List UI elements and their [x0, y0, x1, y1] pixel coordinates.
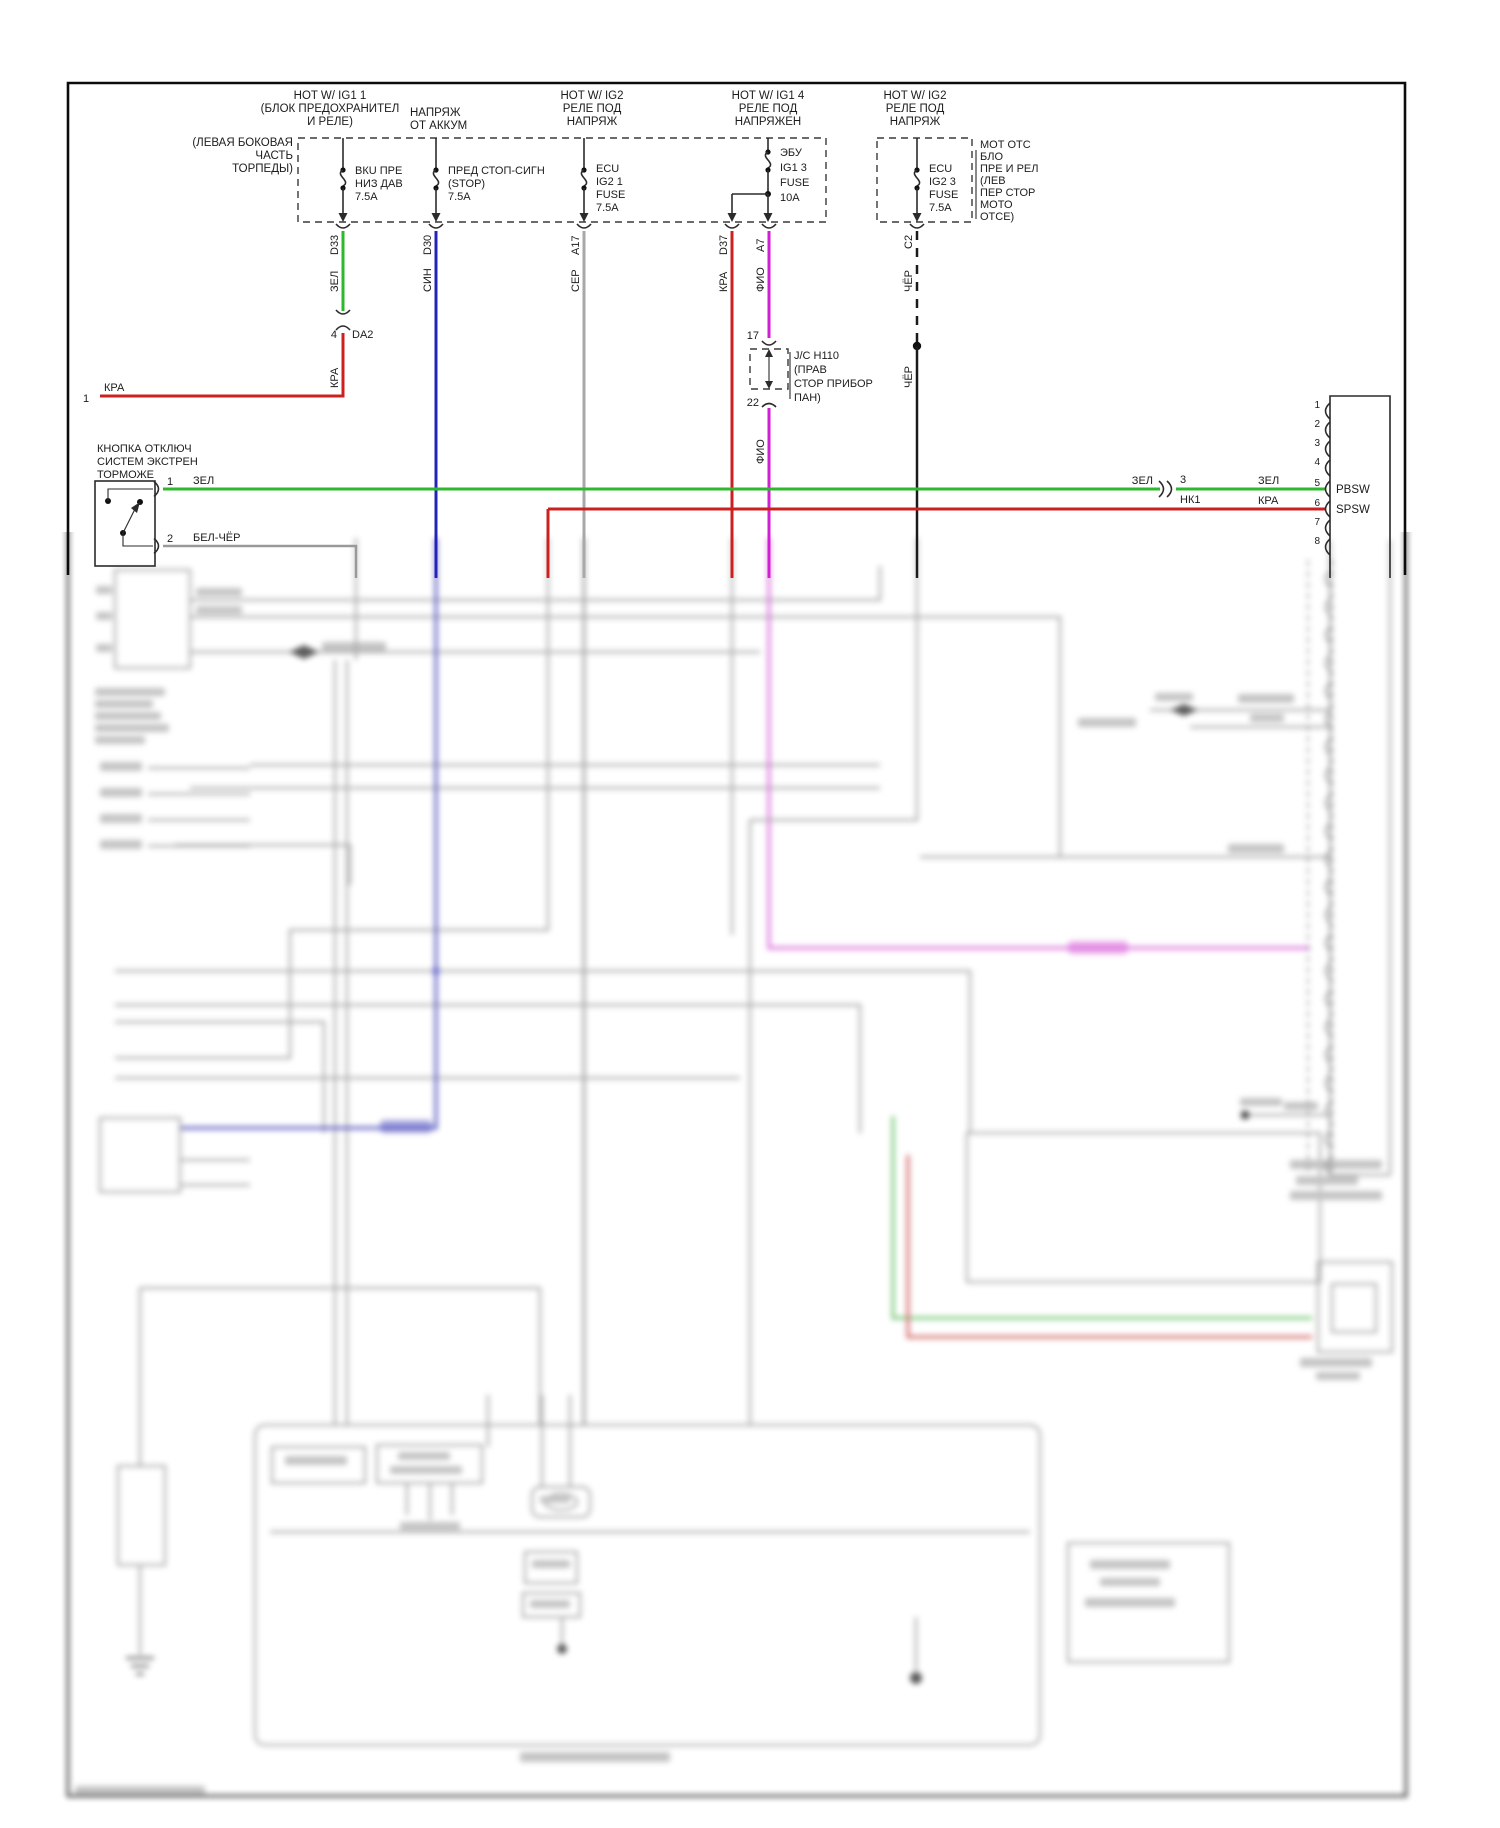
switch-arm-arrow-icon — [131, 502, 140, 513]
svg-text:7.5A: 7.5A — [355, 191, 378, 203]
svg-text:НАПРЯЖЕН: НАПРЯЖЕН — [735, 116, 801, 128]
svg-text:НИЗ ДАВ: НИЗ ДАВ — [355, 178, 403, 190]
svg-text:ПРЕ И РЕЛ: ПРЕ И РЕЛ — [980, 163, 1039, 175]
svg-text:СЕР: СЕР — [570, 269, 582, 292]
power-headers: HOT W/ IG1 1 (БЛОК ПРЕДОХРАНИТЕЛ И РЕЛЕ)… — [192, 90, 946, 175]
long-wires — [163, 489, 1326, 578]
svg-text:ФИО: ФИО — [755, 267, 767, 292]
svg-text:ЧАСТЬ: ЧАСТЬ — [255, 150, 293, 162]
svg-text:5: 5 — [1314, 478, 1320, 489]
location-note-left: (ЛЕВАЯ БОКОВАЯ — [192, 137, 293, 149]
svg-text:D30: D30 — [422, 235, 434, 255]
arrow-down-icon — [432, 213, 441, 222]
svg-text:КНОПКА ОТКЛЮЧ: КНОПКА ОТКЛЮЧ — [97, 443, 192, 455]
svg-text:ЗЕЛ: ЗЕЛ — [1258, 475, 1279, 487]
svg-text:J/C H110: J/C H110 — [794, 350, 839, 362]
svg-text:ЧЁР: ЧЁР — [903, 366, 915, 388]
svg-text:НАПРЯЖ: НАПРЯЖ — [890, 116, 941, 128]
svg-text:(БЛОК ПРЕДОХРАНИТЕЛ: (БЛОК ПРЕДОХРАНИТЕЛ — [261, 103, 400, 115]
svg-text:1: 1 — [1314, 400, 1320, 411]
wire-kra-spsw — [548, 509, 1326, 578]
svg-text:КРА: КРА — [1258, 495, 1279, 507]
svg-text:1: 1 — [83, 393, 89, 405]
header-hot-ig1-4: HOT W/ IG1 4 — [732, 90, 805, 102]
svg-text:ПЕР СТОР: ПЕР СТОР — [980, 187, 1035, 199]
svg-text:D37: D37 — [718, 235, 730, 255]
svg-text:1: 1 — [167, 476, 173, 488]
svg-text:(ПРАВ: (ПРАВ — [794, 364, 827, 376]
arrow-down-icon — [913, 213, 922, 222]
wire-kra-da2 — [100, 333, 343, 396]
header-hot-ig2-b: HOT W/ IG2 — [883, 90, 946, 102]
svg-text:D33: D33 — [329, 235, 341, 255]
fuse-stop: ПРЕД СТОП-СИГН (STOP) 7.5A — [432, 138, 545, 222]
svg-text:8: 8 — [1314, 536, 1320, 547]
svg-text:ОТ АККУМ: ОТ АККУМ — [410, 120, 467, 132]
svg-text:РЕЛЕ ПОД: РЕЛЕ ПОД — [739, 103, 798, 115]
da2-connector: 4 DA2 КРА КРА 1 — [83, 310, 373, 405]
arrow-up-icon — [765, 349, 773, 357]
fuse-box-2: МОТ ОТС БЛО ПРЕ И РЕЛ (ЛЕВ ПЕР СТОР МОТО… — [877, 138, 1039, 223]
svg-text:СИСТЕМ ЭКСТРЕН: СИСТЕМ ЭКСТРЕН — [97, 456, 198, 468]
svg-text:КРА: КРА — [329, 367, 341, 388]
svg-text:2: 2 — [167, 533, 173, 545]
arrow-down-icon — [728, 213, 737, 222]
right-connector: 1 2 3 4 5 6 7 8 PBSW SPSW — [1314, 396, 1390, 578]
svg-text:ТОРМОЖЕ: ТОРМОЖЕ — [97, 469, 154, 481]
svg-text:ЗЕЛ: ЗЕЛ — [329, 271, 341, 292]
svg-text:C2: C2 — [903, 235, 915, 249]
svg-text:(ЛЕВ: (ЛЕВ — [980, 175, 1006, 187]
svg-text:A7: A7 — [755, 239, 767, 252]
svg-text:10A: 10A — [780, 192, 800, 204]
pin-label-spsw: SPSW — [1336, 504, 1370, 516]
svg-text:БЕЛ-ЧЁР: БЕЛ-ЧЁР — [193, 532, 240, 544]
svg-text:ФИО: ФИО — [755, 439, 767, 464]
sharp-upper-diagram: HOT W/ IG1 1 (БЛОК ПРЕДОХРАНИТЕЛ И РЕЛЕ)… — [0, 0, 1500, 1828]
svg-text:ОТСЕ): ОТСЕ) — [980, 211, 1014, 223]
arrow-down-icon — [339, 213, 348, 222]
svg-text:И РЕЛЕ): И РЕЛЕ) — [307, 116, 353, 128]
svg-text:БЛО: БЛО — [980, 151, 1003, 163]
svg-text:НАПРЯЖ: НАПРЯЖ — [567, 116, 618, 128]
svg-text:КРА: КРА — [104, 382, 125, 394]
brake-override-switch: КНОПКА ОТКЛЮЧ СИСТЕМ ЭКСТРЕН ТОРМОЖЕ 1 З… — [95, 443, 240, 566]
jc-h110: 17 J/C H110 (ПРАВ СТОР ПРИБОР ПАН) 22 — [747, 330, 873, 409]
pin-label-pbsw: PBSW — [1336, 484, 1370, 496]
svg-text:FUSE: FUSE — [780, 177, 809, 189]
svg-text:СИН: СИН — [422, 268, 434, 292]
svg-text:2: 2 — [1314, 419, 1320, 430]
svg-text:4: 4 — [1314, 457, 1320, 468]
svg-text:РЕЛЕ ПОД: РЕЛЕ ПОД — [563, 103, 622, 115]
svg-text:ЗЕЛ: ЗЕЛ — [1132, 475, 1153, 487]
svg-text:ПРЕД СТОП-СИГН: ПРЕД СТОП-СИГН — [448, 165, 545, 177]
svg-text:IG2 3: IG2 3 — [929, 176, 956, 188]
svg-text:6: 6 — [1314, 498, 1320, 509]
svg-text:СТОР ПРИБОР: СТОР ПРИБОР — [794, 378, 873, 390]
svg-text:ЗЕЛ: ЗЕЛ — [193, 475, 214, 487]
arrow-down-icon — [580, 213, 589, 222]
svg-text:7: 7 — [1314, 517, 1320, 528]
svg-text:7.5A: 7.5A — [929, 202, 952, 214]
svg-text:ECU: ECU — [596, 163, 619, 175]
svg-text:7.5A: 7.5A — [448, 191, 471, 203]
header-hot-ig2-a: HOT W/ IG2 — [560, 90, 623, 102]
location-note-right: МОТ ОТС — [980, 139, 1031, 151]
svg-text:FUSE: FUSE — [929, 189, 958, 201]
svg-text:ТОРПЕДЫ): ТОРПЕДЫ) — [232, 163, 293, 175]
svg-text:МОТО: МОТО — [980, 199, 1013, 211]
svg-text:(STOP): (STOP) — [448, 178, 485, 190]
svg-text:РЕЛЕ ПОД: РЕЛЕ ПОД — [886, 103, 945, 115]
svg-text:3: 3 — [1180, 474, 1186, 486]
svg-text:FUSE: FUSE — [596, 189, 625, 201]
fuse-ecu-ig2-3: ECU IG2 3 FUSE 7.5A — [913, 138, 959, 222]
fuse-ecu-ig2-1: ECU IG2 1 FUSE 7.5A — [580, 138, 626, 222]
svg-text:3: 3 — [1314, 438, 1320, 449]
svg-text:7.5A: 7.5A — [596, 202, 619, 214]
svg-text:ВКU ПРЕ: ВКU ПРЕ — [355, 165, 402, 177]
wire-belcher — [163, 546, 356, 578]
fuse-bku-low-pressure: ВКU ПРЕ НИЗ ДАВ 7.5A — [339, 138, 403, 222]
svg-text:17: 17 — [747, 330, 759, 342]
svg-text:IG2 1: IG2 1 — [596, 176, 623, 188]
svg-text:КРА: КРА — [718, 271, 730, 292]
svg-text:ЧЁР: ЧЁР — [903, 270, 915, 292]
svg-text:IG1 3: IG1 3 — [780, 162, 807, 174]
wiring-diagram-page: HOT W/ IG1 1 (БЛОК ПРЕДОХРАНИТЕЛ И РЕЛЕ)… — [0, 0, 1500, 1828]
svg-text:DA2: DA2 — [352, 329, 373, 341]
svg-text:4: 4 — [331, 329, 337, 341]
svg-text:22: 22 — [747, 397, 759, 409]
arrow-down-icon — [765, 381, 773, 389]
fuse-ebu-ig1-3: ЭБУ IG1 3 FUSE 10A — [728, 138, 810, 222]
svg-text:ПАН): ПАН) — [794, 392, 821, 404]
arrow-down-icon — [764, 213, 773, 222]
svg-text:A17: A17 — [570, 235, 582, 255]
header-battery: НАПРЯЖ — [410, 107, 461, 119]
header-hot-ig1-1: HOT W/ IG1 1 — [294, 90, 367, 102]
svg-text:ECU: ECU — [929, 163, 952, 175]
svg-text:НК1: НК1 — [1180, 494, 1200, 506]
svg-text:ЭБУ: ЭБУ — [780, 147, 803, 159]
fusebox-exit-connectors — [336, 224, 924, 228]
